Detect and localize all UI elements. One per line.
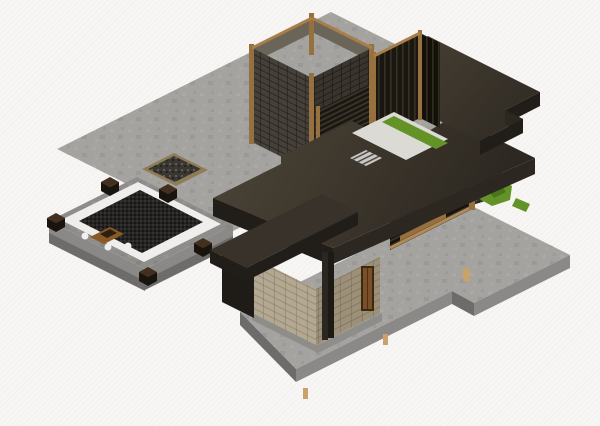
decor-bottle [383,334,388,345]
pillar-face-left [322,252,328,340]
white-stone [82,233,89,240]
white-stone [105,244,112,251]
shrub-small [512,198,530,212]
entry-door [361,266,374,311]
pillar-face-right [328,252,334,338]
courtyard-post [418,30,422,120]
steel-pillar [322,252,334,340]
3d-viewport[interactable] [0,0,600,426]
isometric-scene [0,0,600,426]
decor-bottle [303,388,308,399]
white-stone [125,243,132,250]
tower-corner-post [249,44,254,144]
decor-bottle [463,268,470,281]
courtyard-slat-texture-b [420,33,440,128]
